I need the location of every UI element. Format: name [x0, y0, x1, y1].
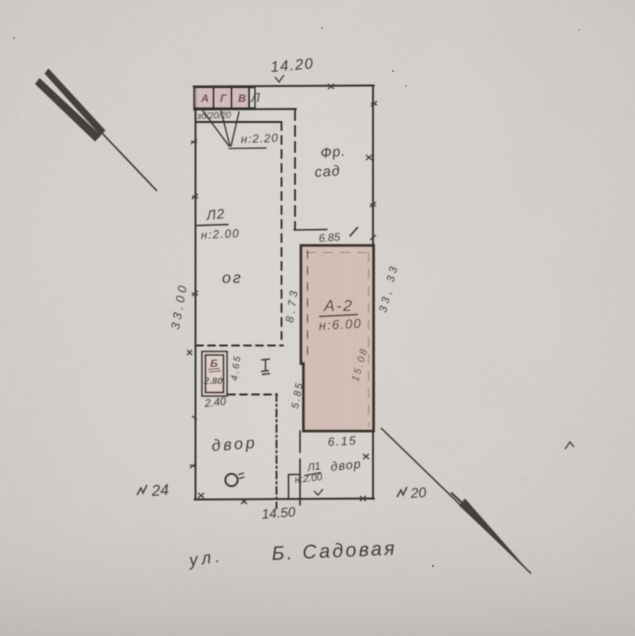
svg-text:н:2.20: н:2.20	[241, 133, 279, 146]
svg-text:6.15: 6.15	[327, 433, 357, 449]
svg-text:2.80: 2.80	[203, 376, 223, 387]
svg-text:14.50: 14.50	[261, 504, 296, 521]
svg-text:ог: ог	[222, 270, 243, 287]
svg-text:сад: сад	[314, 163, 341, 181]
svg-text:зб/20/20: зб/20/20	[196, 110, 231, 121]
svg-text:Л2: Л2	[205, 206, 226, 223]
svg-text:А-2: А-2	[323, 298, 353, 315]
svg-text:20: 20	[409, 484, 427, 501]
svg-text:6.85: 6.85	[318, 231, 341, 245]
svg-text:В: В	[238, 93, 246, 105]
svg-text:Л: Л	[250, 90, 260, 105]
svg-text:двор: двор	[211, 435, 258, 455]
svg-text:Б: Б	[210, 358, 218, 370]
svg-text:А: А	[200, 93, 209, 105]
svg-text:Фр.: Фр.	[320, 142, 347, 161]
svg-text:н:6.00: н:6.00	[318, 316, 362, 333]
svg-text:н:2.00: н:2.00	[201, 228, 241, 242]
svg-text:24: 24	[150, 482, 170, 500]
svg-text:2.40: 2.40	[203, 396, 227, 410]
